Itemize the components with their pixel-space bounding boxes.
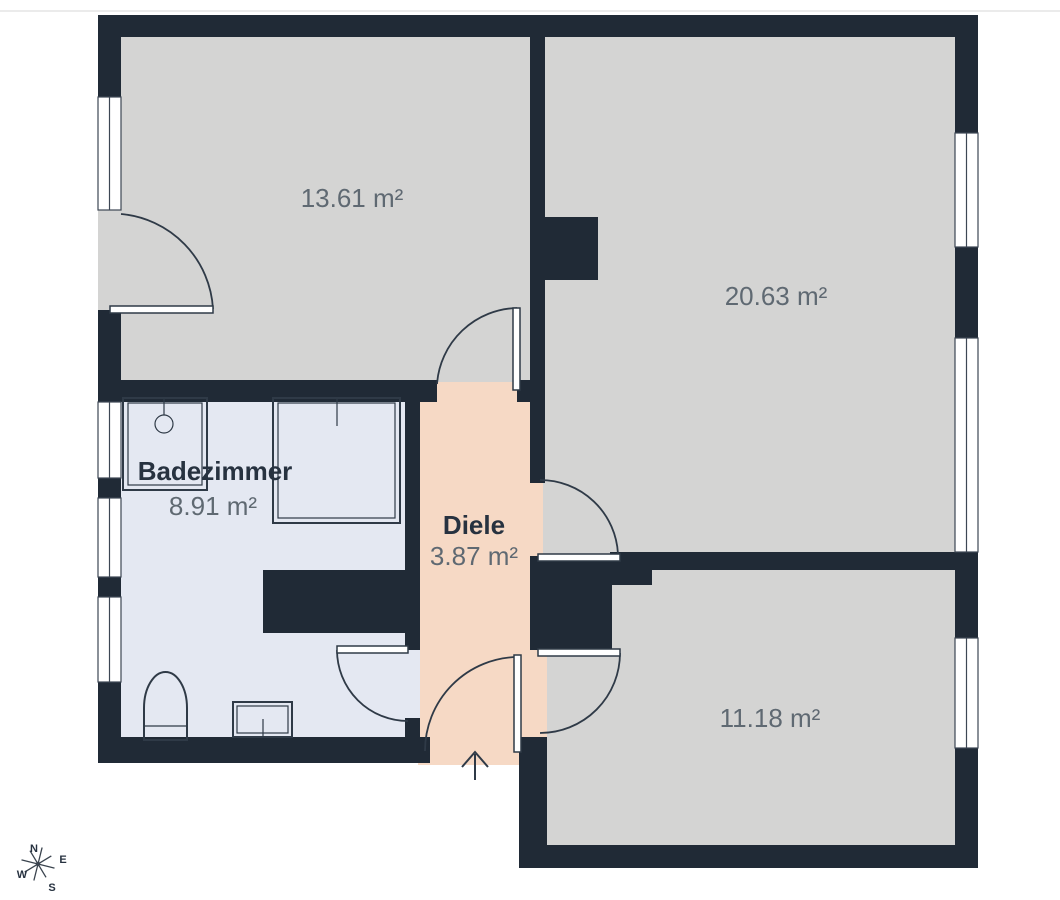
wall-segment [98,478,121,498]
compass-north-label: N [30,843,38,855]
wall-segment [638,552,955,570]
window [98,402,121,478]
compass-south-label: S [48,882,55,894]
bathroom-floor [98,396,420,740]
hallway-floor [418,378,547,765]
wall-segment [955,247,978,338]
bathroom-area-label: 8.91 m² [169,491,257,521]
hallway-area-label: 3.87 m² [430,541,518,571]
window [955,638,978,748]
room-top-right-area-label: 20.63 m² [725,281,828,311]
chimney-block [545,217,598,280]
window [955,338,978,552]
floor-plan-page: 13.61 m² 20.63 m² Badezimmer 8.91 m² Die… [0,0,1060,900]
window [98,498,121,577]
floor-plan-canvas: 13.61 m² 20.63 m² Badezimmer 8.91 m² Die… [0,0,1060,900]
wall-segment [98,577,121,597]
wall-segment [519,845,978,868]
bathroom-name-label: Badezimmer [138,456,293,486]
floors [98,37,955,848]
hallway-name-label: Diele [443,510,505,540]
wall-segment [955,552,978,638]
wall-segment [98,37,121,97]
wall-segment [530,37,545,483]
window [98,597,121,682]
window [98,97,121,210]
wall-alcove-block [263,570,410,633]
wall-segment [530,556,612,650]
compass-west-label: W [17,869,28,881]
window [955,133,978,247]
room-bottom-right-area-label: 11.18 m² [720,703,821,733]
wall-segment [98,15,978,37]
room-top-left-area-label: 13.61 m² [301,183,404,213]
wall-segment [955,37,978,133]
compass-rose: N E W S [17,843,67,894]
compass-east-label: E [59,854,66,866]
